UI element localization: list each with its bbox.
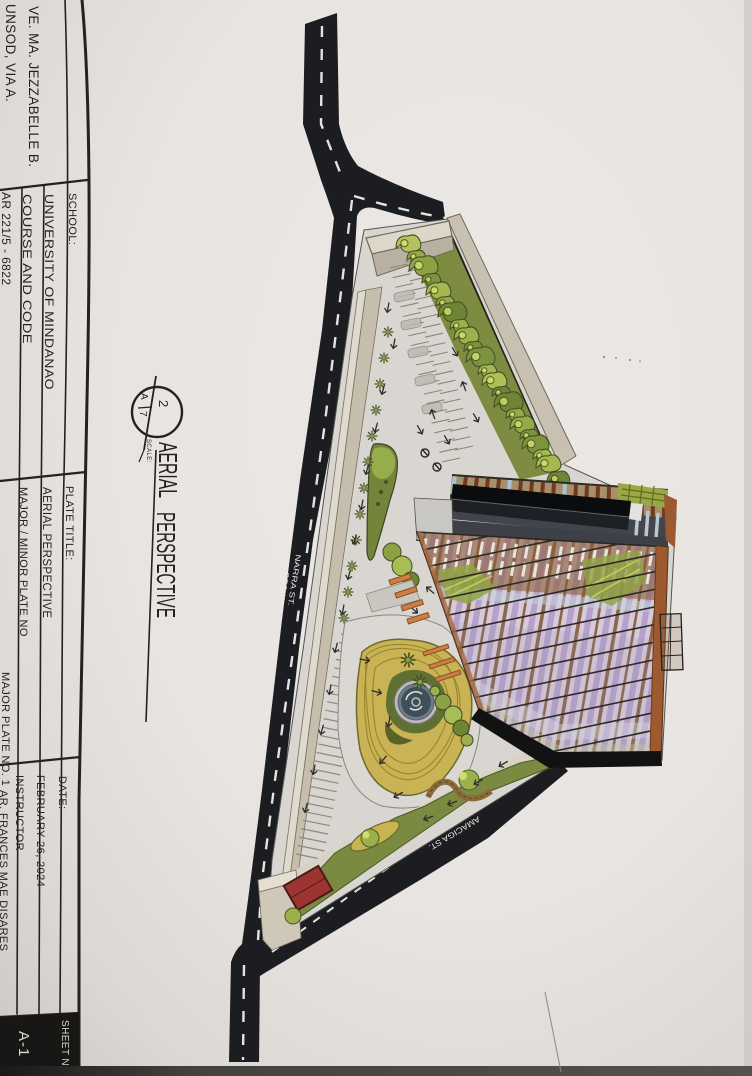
svg-text:7: 7 [137, 411, 148, 417]
svg-text:UNSOD, VIA A.: UNSOD, VIA A. [3, 4, 18, 102]
svg-text:PERSPECTIVE: PERSPECTIVE [151, 512, 181, 618]
svg-text:INSTRUCTOR: INSTRUCTOR [13, 775, 25, 851]
svg-text:AR. FRANCES MAE DISARES: AR. FRANCES MAE DISARES [0, 790, 9, 951]
svg-text:FEBRUARY 26, 2024: FEBRUARY 26, 2024 [34, 775, 46, 887]
svg-text:MAJOR PLATE NO. 1: MAJOR PLATE NO. 1 [0, 672, 11, 786]
svg-text:MAJOR / MINOR PLATE NO: MAJOR / MINOR PLATE NO [17, 487, 29, 637]
svg-text:SHEET N: SHEET N [59, 1020, 70, 1066]
svg-text:SCALE:: SCALE: [145, 439, 151, 463]
svg-text:AERIAL: AERIAL [153, 442, 183, 498]
svg-text:VE. MA. JEZZABELLE B.: VE. MA. JEZZABELLE B. [26, 6, 41, 167]
svg-text:COURSE AND CODE: COURSE AND CODE [20, 194, 34, 344]
svg-text:A: A [138, 393, 149, 400]
svg-text:DATE:: DATE: [56, 776, 68, 810]
svg-text:SCHOOL:: SCHOOL: [66, 193, 78, 245]
svg-text:AERIAL PERSPECTIVE: AERIAL PERSPECTIVE [40, 487, 52, 618]
svg-text:2: 2 [156, 400, 171, 408]
svg-text:A-1: A-1 [15, 1031, 32, 1057]
svg-text:UNIVERSITY OF MINDANAO: UNIVERSITY OF MINDANAO [42, 194, 56, 390]
svg-text:PLATE TITLE:: PLATE TITLE: [63, 486, 75, 561]
svg-text:AR 221/5 - 6822: AR 221/5 - 6822 [0, 192, 13, 285]
